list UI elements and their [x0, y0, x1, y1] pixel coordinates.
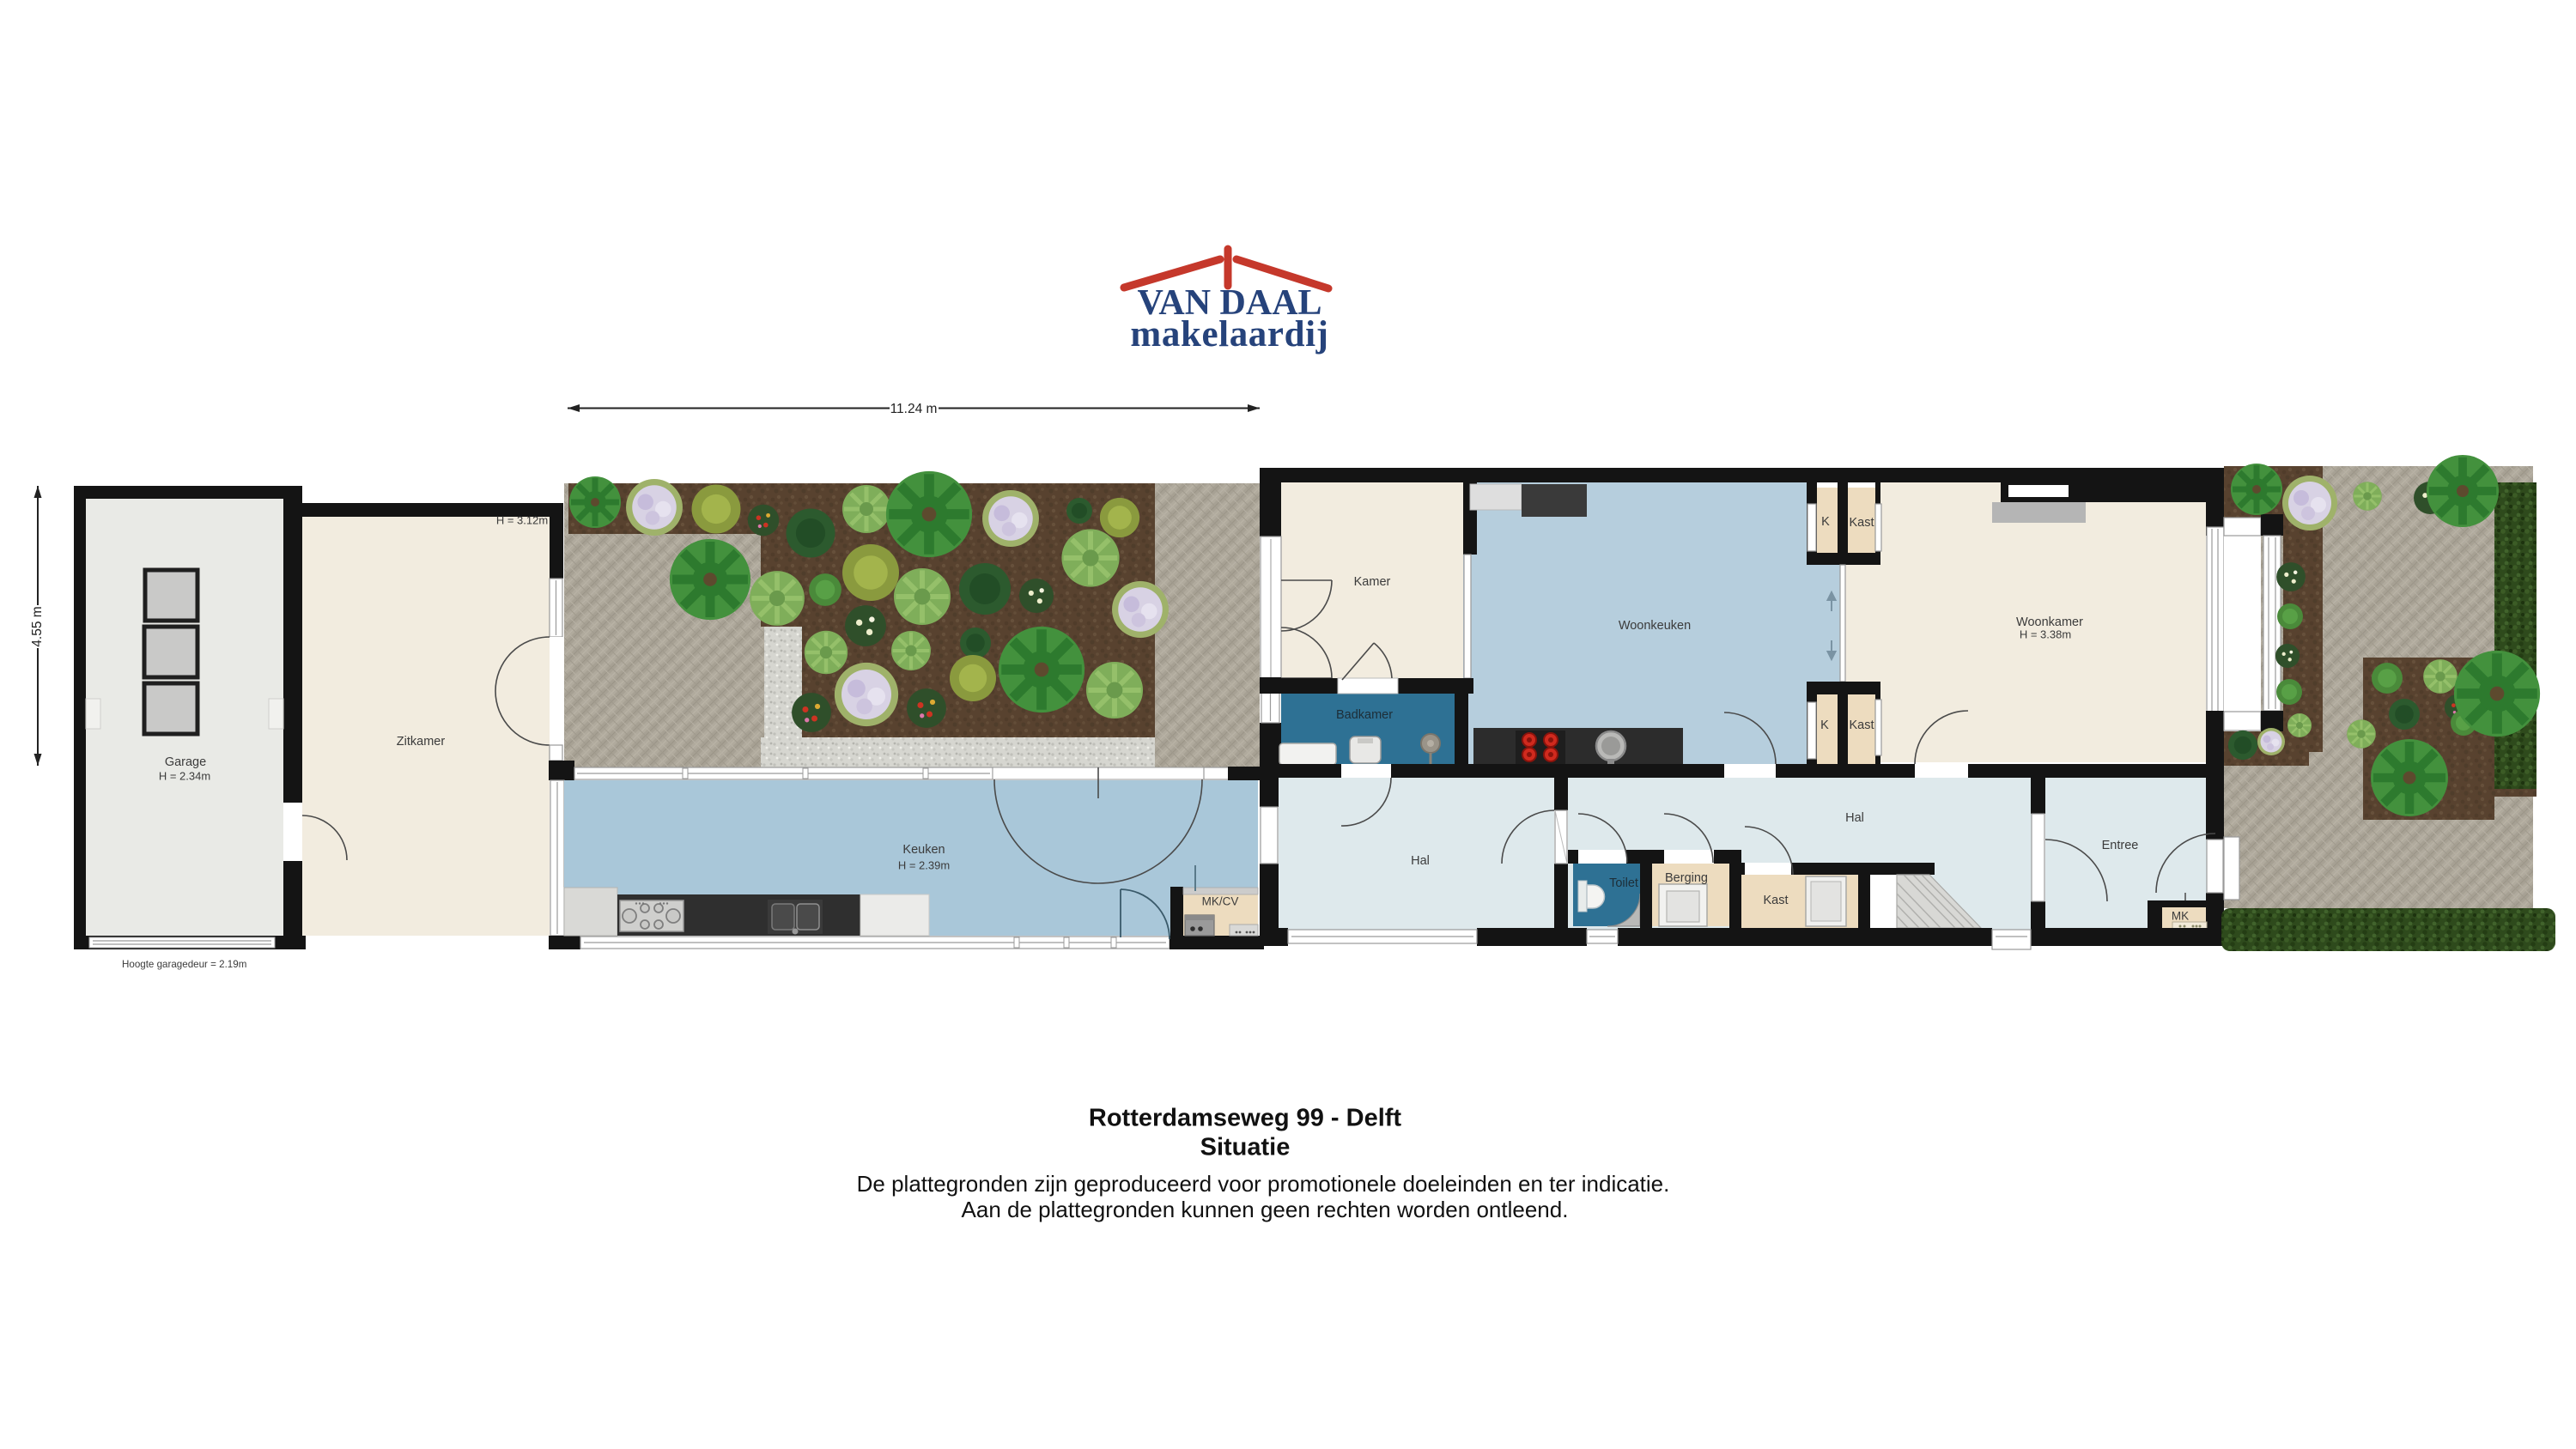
svg-text:Garage: Garage	[165, 755, 206, 769]
svg-text:Woonkamer: Woonkamer	[2016, 615, 2083, 629]
svg-text:Kast: Kast	[1849, 516, 1874, 530]
svg-text:K: K	[1821, 515, 1830, 529]
svg-text:Badkamer: Badkamer	[1336, 708, 1393, 722]
svg-text:Berging: Berging	[1665, 871, 1708, 885]
svg-text:Hal: Hal	[1845, 811, 1864, 825]
svg-text:Entree: Entree	[2102, 839, 2139, 852]
svg-text:Toilet: Toilet	[1609, 876, 1638, 890]
svg-text:11.24 m: 11.24 m	[890, 402, 938, 416]
svg-text:Woonkeuken: Woonkeuken	[1619, 619, 1691, 633]
svg-text:Hal: Hal	[1411, 854, 1430, 868]
svg-text:Keuken: Keuken	[902, 843, 945, 857]
svg-text:H = 2.39m: H = 2.39m	[898, 858, 950, 871]
svg-text:K: K	[1820, 718, 1829, 732]
svg-text:Kamer: Kamer	[1354, 575, 1391, 589]
svg-text:Kast: Kast	[1763, 894, 1788, 907]
svg-text:Kast: Kast	[1849, 718, 1874, 732]
svg-text:H = 2.34m: H = 2.34m	[159, 769, 210, 782]
svg-text:MK/CV: MK/CV	[1202, 895, 1239, 908]
svg-text:Rotterdamseweg 99 - Delft: Rotterdamseweg 99 - Delft	[1089, 1105, 1402, 1132]
svg-text:MK: MK	[2172, 910, 2189, 923]
svg-text:Zitkamer: Zitkamer	[397, 735, 446, 749]
svg-text:4.55 m: 4.55 m	[30, 606, 45, 646]
svg-text:Aan de plattegronden kunnen ge: Aan de plattegronden kunnen geen rechten…	[962, 1197, 1569, 1222]
svg-text:makelaardij: makelaardij	[1130, 314, 1328, 355]
svg-text:De plattegronden zijn geproduc: De plattegronden zijn geproduceerd voor …	[857, 1171, 1670, 1197]
svg-text:Hoogte garagedeur = 2.19m: Hoogte garagedeur = 2.19m	[122, 959, 246, 970]
svg-text:Situatie: Situatie	[1200, 1134, 1291, 1161]
svg-text:H = 3.38m: H = 3.38m	[2020, 627, 2071, 640]
svg-text:H = 3.12m: H = 3.12m	[496, 513, 548, 526]
